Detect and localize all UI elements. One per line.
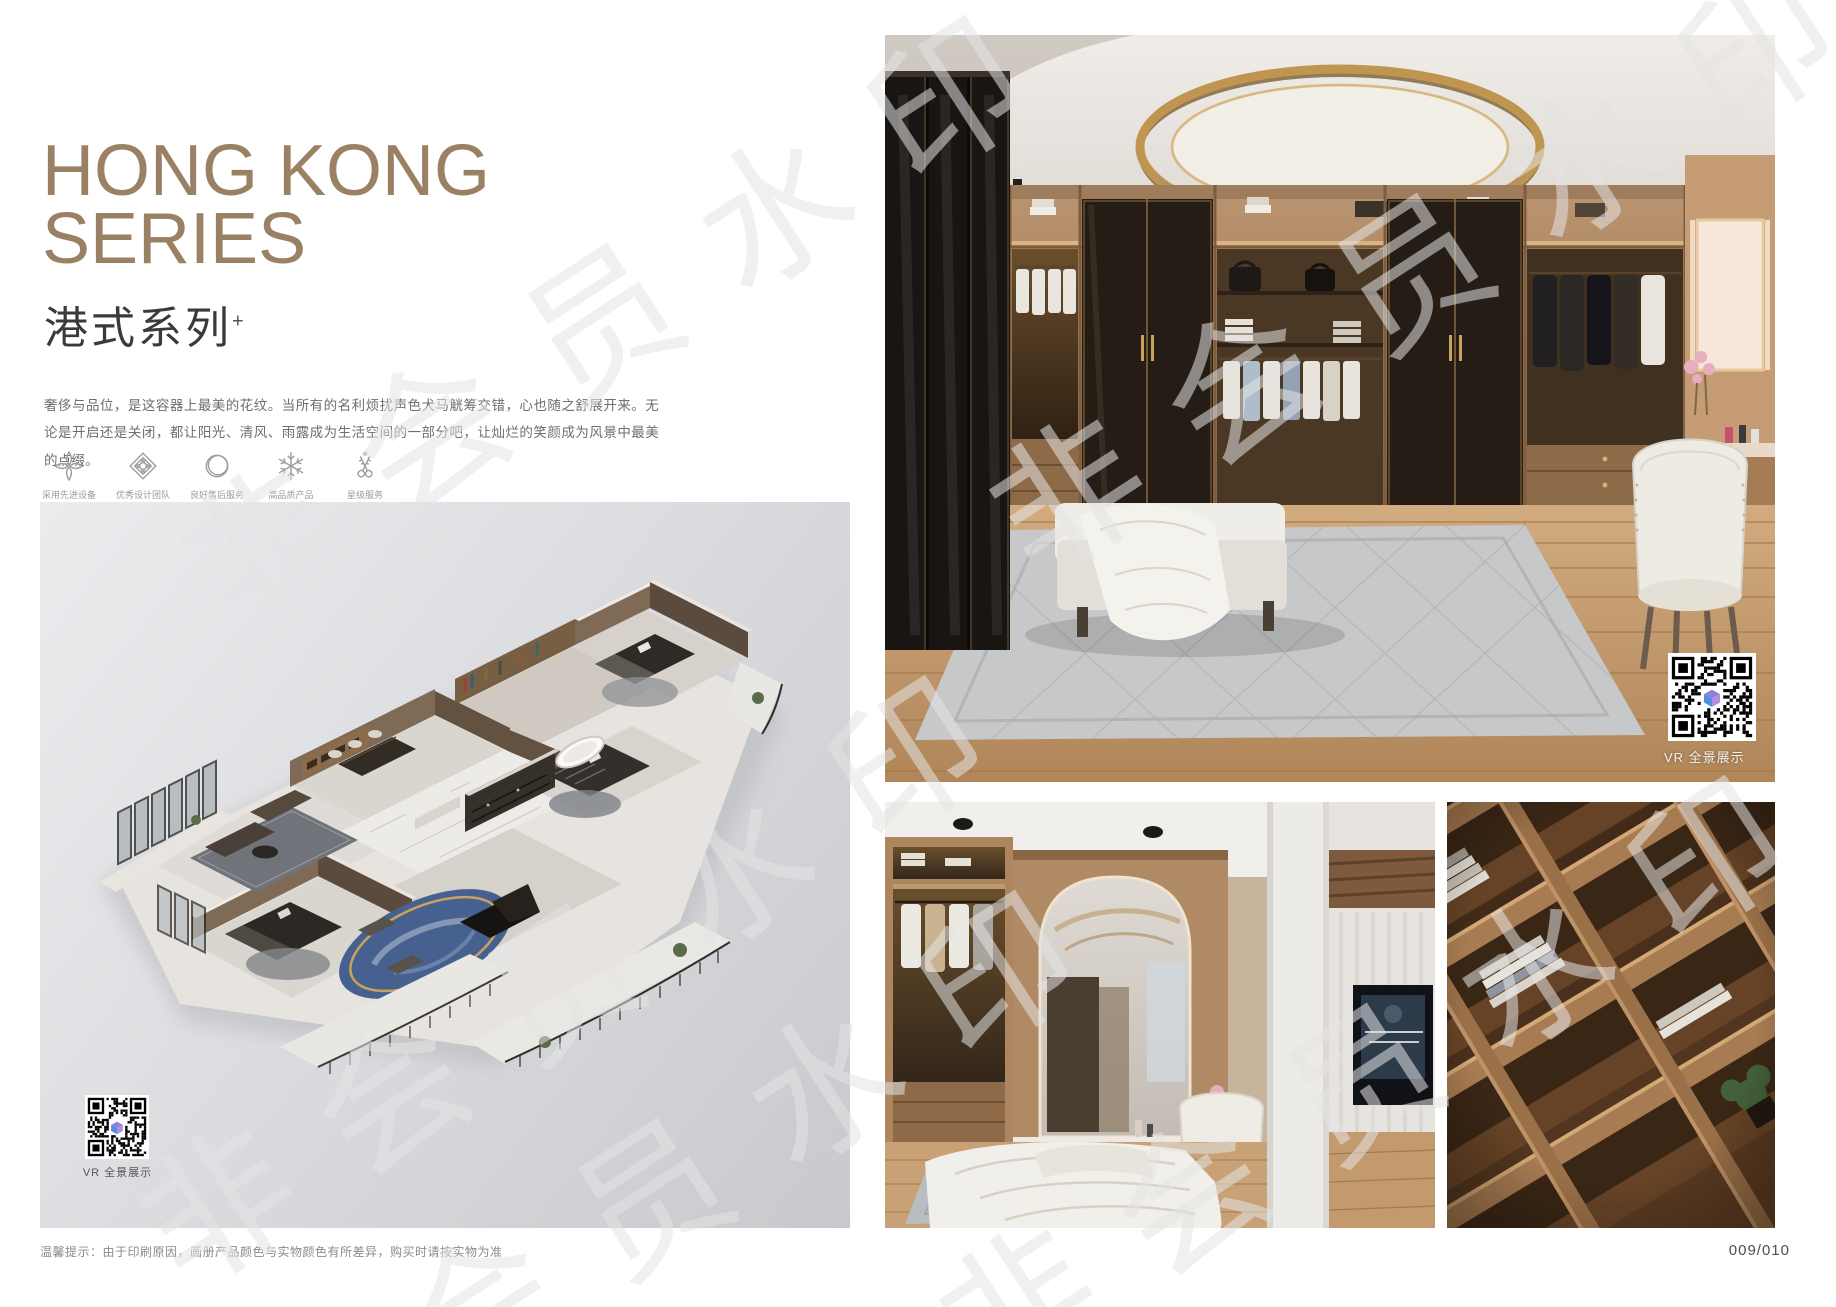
- series-title: HONG KONG SERIES: [42, 138, 490, 273]
- catalog-page: HONG KONG SERIES 港式系列+ 奢侈与品位，是这容器上最美的花纹。…: [0, 0, 1836, 1307]
- main-photo-vr-label: VR 全景展示: [1664, 747, 1760, 766]
- feature-label: 良好售后服务: [190, 488, 244, 501]
- feature-label: 星级服务: [347, 488, 383, 501]
- feature-item: 采用先进设备: [38, 450, 100, 501]
- floorplan-vr-label: VR 全景展示: [60, 1164, 175, 1180]
- feature-item: 优秀设计团队: [112, 450, 174, 501]
- photo-shelf-closeup: [1447, 802, 1775, 1228]
- crossed-keys-icon: [349, 450, 381, 482]
- dressing-area-render: [885, 802, 1435, 1228]
- feature-row: 采用先进设备 优秀设计团队 良好售后服务: [38, 450, 396, 501]
- subtitle-plus-mark: +: [232, 310, 247, 332]
- series-subtitle: 港式系列+: [44, 292, 247, 356]
- footer-tip: 温馨提示：由于印刷原因，画册产品颜色与实物颜色有所差异，购买时请按实物为准: [40, 1243, 503, 1260]
- feature-label: 高品质产品: [268, 488, 313, 501]
- main-photo-walkin-closet: VR 全景展示: [885, 35, 1775, 782]
- shelf-closeup-render: [1447, 802, 1775, 1228]
- page-number: 009/010: [1729, 1242, 1790, 1259]
- walkin-closet-render: [885, 35, 1775, 782]
- feature-item: 良好售后服务: [186, 450, 248, 501]
- main-photo-qr-code: [1668, 653, 1756, 741]
- photo-dressing-area: [885, 802, 1435, 1228]
- feature-item: 星级服务: [334, 450, 396, 501]
- floorplan-qr-code: [85, 1095, 149, 1159]
- rosette-icon: [127, 450, 159, 482]
- feature-item: 高品质产品: [260, 450, 322, 501]
- floorplan-render: [40, 502, 850, 1228]
- petal-ornament-icon: [53, 450, 85, 482]
- floorplan-plate: VR 全景展示: [40, 502, 850, 1228]
- ring-icon: [201, 450, 233, 482]
- series-title-line1: HONG KONG: [42, 138, 490, 206]
- series-title-line2: SERIES: [42, 206, 490, 274]
- feature-label: 优秀设计团队: [116, 488, 170, 501]
- feature-label: 采用先进设备: [42, 488, 96, 501]
- snowflake-icon: [275, 450, 307, 482]
